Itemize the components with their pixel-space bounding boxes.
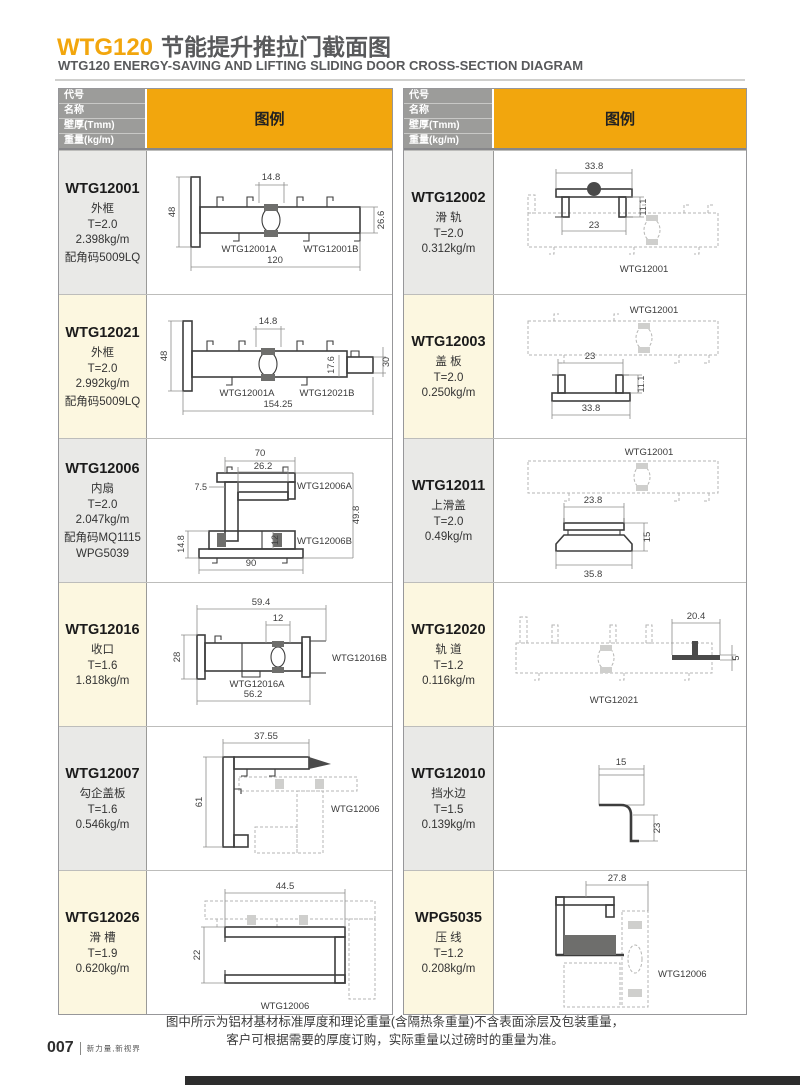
diagram-wtg12021: 14.8 48 17.6 30 154.25 WTG12001A WTG1202… — [147, 295, 391, 437]
profile-thickness: T=1.9 — [88, 948, 118, 960]
footer-divider — [80, 1042, 81, 1055]
ref-profile-label: WTG12001 — [630, 305, 679, 316]
profile-part-label: WTG12021B — [300, 388, 355, 399]
dashed-ref-profile — [528, 461, 718, 501]
header-label-code: 代号 — [404, 89, 492, 104]
profile-code: WTG12007 — [65, 766, 139, 782]
header-label-name: 名称 — [59, 104, 145, 119]
corner-code-note: WPG5039 — [76, 548, 129, 560]
profile-outline — [556, 518, 632, 551]
profile-code: WTG12011 — [412, 478, 485, 494]
dim-label: 44.5 — [276, 881, 295, 892]
profile-diagram: 20.4 5 WTG12021 — [494, 583, 746, 726]
profile-info: WTG12021 外框 T=2.0 2.992kg/m 配角码5009LQ — [59, 295, 147, 438]
profile-code: WTG12001 — [65, 181, 139, 197]
dim-label: 11.1 — [636, 376, 646, 393]
thermal-break-ref — [600, 645, 612, 651]
dim-label: 15 — [616, 757, 627, 768]
diagram-wtg12016: 59.4 12 28 56.2 WTG12016A WTG12016B — [147, 583, 391, 725]
thermal-break-ref — [638, 347, 650, 353]
header-label-name: 名称 — [404, 104, 492, 119]
thermal-break-ref — [315, 779, 324, 789]
dim-label: 20.4 — [687, 611, 706, 622]
corner-code-note: 配角码5009LQ — [65, 393, 140, 409]
profile-code: WTG12020 — [411, 622, 485, 638]
thermal-break-ref — [275, 779, 284, 789]
profile-diagram: 70 26.2 7.5 14.8 12 49.8 90 WTG12006A WT… — [147, 439, 392, 582]
header-label-weight: 重量(kg/m) — [404, 134, 492, 148]
thermal-break-ref — [646, 239, 658, 245]
ref-profile-label: WTG12006 — [331, 804, 380, 815]
header-label-weight: 重量(kg/m) — [59, 134, 145, 148]
thermal-break-ref — [299, 915, 308, 925]
dim-label: 33.8 — [585, 161, 604, 172]
profile-thickness: T=1.6 — [88, 660, 118, 672]
diagram-wtg12001: 14.8 48 26.6 120 WTG12001A WTG12001B — [147, 151, 391, 293]
profile-diagram: 37.55 61 WTG12006 — [147, 727, 392, 870]
dim-label: 61 — [194, 797, 205, 808]
dim-label: 35.8 — [584, 569, 603, 580]
dim-label: 154.25 — [263, 399, 292, 410]
profile-thickness: T=2.0 — [88, 363, 118, 375]
profile-diagram: 23 11.1 33.8 WTG12001 — [494, 295, 746, 438]
diagram-wtg12010: 15 23 — [494, 727, 745, 869]
profile-name: 外框 — [91, 344, 114, 360]
profile-name: 盖 板 — [435, 353, 461, 369]
profile-weight: 2.047kg/m — [76, 514, 130, 526]
ref-profile-label: WTG12001 — [625, 447, 674, 458]
thermal-break — [261, 348, 275, 355]
dimension-lines — [556, 503, 648, 569]
dim-label: 37.55 — [254, 731, 278, 742]
profile-name: 收口 — [91, 641, 114, 657]
profile-part-label: WTG12016B — [332, 653, 387, 664]
corner-code-note: 配角码MQ1115 — [64, 529, 141, 545]
profile-name: 压 线 — [435, 929, 461, 945]
dim-label: 14.8 — [176, 535, 186, 553]
thermal-break-ref — [628, 989, 642, 997]
profile-name: 滑 槽 — [89, 929, 115, 945]
profile-code: WPG5035 — [415, 910, 482, 926]
profile-part-label: WTG12001A — [220, 388, 276, 399]
profile-diagram: 59.4 12 28 56.2 WTG12016A WTG12016B — [147, 583, 392, 726]
profile-part-label: WTG12006A — [297, 481, 353, 492]
dashed-ref-profile — [205, 901, 375, 999]
profile-nose — [309, 757, 331, 769]
dim-label: 23 — [589, 220, 600, 231]
profile-code: WTG12016 — [65, 622, 139, 638]
thermal-break-ref — [638, 323, 650, 329]
page-footer: 007 新力量,新视界 — [47, 1039, 141, 1057]
bottom-edge-bar — [185, 1076, 800, 1085]
page-title-zh: 节能提升推拉门截面图 — [161, 34, 391, 60]
profile-info: WTG12026 滑 槽 T=1.9 0.620kg/m — [59, 871, 147, 1014]
thermal-break-ref — [247, 915, 256, 925]
thermal-break — [272, 667, 284, 673]
table-row: WTG12002 滑 轨 T=2.0 0.312kg/m — [404, 150, 746, 294]
profile-weight: 1.818kg/m — [76, 675, 130, 687]
diagram-wtg12006: 70 26.2 7.5 14.8 12 49.8 90 WTG12006A WT… — [147, 439, 391, 581]
profile-thickness: T=1.2 — [434, 948, 464, 960]
legend-header: 图例 — [147, 89, 392, 148]
dim-label: 14.8 — [259, 316, 278, 327]
profile-weight: 0.116kg/m — [422, 675, 475, 687]
profile-weight: 2.992kg/m — [76, 378, 130, 390]
table-header: 代号 名称 壁厚(Tmm) 重量(kg/m) 图例 — [59, 89, 392, 150]
page-number: 007 — [47, 1039, 74, 1057]
table-row: WTG12011 上滑盖 T=2.0 0.49kg/m — [404, 438, 746, 582]
header-label-thickness: 壁厚(Tmm) — [404, 119, 492, 134]
catalog-page: { "page": { "title_code": "WTG120", "tit… — [0, 0, 800, 1085]
profile-info: WTG12003 盖 板 T=2.0 0.250kg/m — [404, 295, 494, 438]
profile-thickness: T=1.5 — [434, 804, 464, 816]
profile-outline — [672, 655, 720, 660]
thermal-break-ref — [628, 921, 642, 929]
profile-diagram: 15 23 — [494, 727, 746, 870]
dim-label: 27.8 — [608, 873, 627, 884]
diagram-wtg12007: 37.55 61 WTG12006 — [147, 727, 391, 869]
dimension-lines — [185, 457, 353, 574]
legend-header: 图例 — [494, 89, 746, 148]
dim-label: 48 — [159, 351, 170, 362]
profile-info: WTG12010 挡水边 T=1.5 0.139kg/m — [404, 727, 494, 870]
profile-diagram: 33.8 11.1 23 WTG12001 — [494, 151, 746, 294]
profile-outline — [225, 927, 345, 983]
profile-name: 内扇 — [91, 480, 114, 496]
dim-label: 90 — [246, 558, 257, 569]
profile-part-label: WTG12016A — [230, 679, 286, 690]
profile-diagram: 44.5 22 WTG12006 — [147, 871, 392, 1014]
dimension-lines — [203, 739, 309, 847]
dim-label: 120 — [267, 255, 283, 266]
profile-name: 滑 轨 — [435, 209, 461, 225]
profile-thin-wall — [599, 775, 644, 805]
profile-info: WTG12016 收口 T=1.6 1.818kg/m — [59, 583, 147, 726]
dim-label: 23 — [652, 823, 663, 834]
profile-weight: 0.250kg/m — [422, 387, 476, 399]
dashed-ref-profile — [239, 777, 357, 853]
profile-part-label: WTG12001B — [304, 244, 359, 255]
dashed-ref-profile — [528, 195, 718, 254]
page-subtitle: WTG120 ENERGY-SAVING AND LIFTING SLIDING… — [58, 58, 583, 73]
profile-outline — [223, 757, 309, 847]
ref-profile-label: WTG12006 — [658, 969, 707, 980]
profile-outline — [183, 321, 373, 391]
profile-name: 轨 道 — [435, 641, 461, 657]
profile-outline — [197, 635, 326, 679]
thermal-break-ref — [636, 463, 648, 469]
dim-label: 30 — [381, 357, 391, 367]
corner-code-note: 配角码5009LQ — [65, 249, 140, 265]
profile-info: WTG12002 滑 轨 T=2.0 0.312kg/m — [404, 151, 494, 294]
profile-outline — [199, 467, 303, 563]
dim-label: 7.5 — [194, 482, 207, 492]
diagram-wtg12011: 23.8 15 35.8 WTG12001 — [494, 439, 745, 581]
dim-label: 22 — [192, 950, 203, 961]
dim-label: 12 — [273, 613, 284, 624]
profile-info: WTG12007 勾企盖板 T=1.6 0.546kg/m — [59, 727, 147, 870]
profile-table-right: 代号 名称 壁厚(Tmm) 重量(kg/m) 图例 WTG12002 滑 轨 T… — [403, 88, 747, 1015]
header-label-thickness: 壁厚(Tmm) — [59, 119, 145, 134]
table-header-labels: 代号 名称 壁厚(Tmm) 重量(kg/m) — [404, 89, 494, 148]
ref-profile-label: WTG12001 — [620, 264, 669, 275]
profile-diagram: 27.8 WTG12006 — [494, 871, 746, 1014]
dimension-lines — [586, 881, 648, 911]
profile-weight: 0.208kg/m — [422, 963, 476, 975]
dim-label: 56.2 — [244, 689, 263, 700]
profile-info: WTG12006 内扇 T=2.0 2.047kg/m 配角码MQ1115 WP… — [59, 439, 147, 582]
profile-code: WTG12002 — [411, 190, 485, 206]
gasket — [564, 935, 616, 955]
profile-thickness: T=1.2 — [434, 660, 464, 672]
dimension-lines — [201, 889, 345, 983]
profile-weight: 0.139kg/m — [422, 819, 476, 831]
profile-code: WTG12003 — [411, 334, 485, 350]
header-label-code: 代号 — [59, 89, 145, 104]
profile-code: WTG12006 — [65, 461, 139, 477]
profile-thickness: T=2.0 — [434, 372, 464, 384]
profile-thickness: T=1.6 — [88, 804, 118, 816]
dim-label: 70 — [255, 448, 266, 459]
profile-info: WTG12011 上滑盖 T=2.0 0.49kg/m — [404, 439, 494, 582]
dashed-ref-profile — [516, 617, 712, 680]
dim-label: 59.4 — [252, 597, 271, 608]
diagram-wtg12003: 23 11.1 33.8 WTG12001 — [494, 295, 745, 437]
profile-info: WPG5035 压 线 T=1.2 0.208kg/m — [404, 871, 494, 1014]
table-row: WTG12010 挡水边 T=1.5 0.139kg/m 15 23 — [404, 726, 746, 870]
thermal-break — [217, 533, 226, 547]
ref-profile-label: WTG12021 — [590, 695, 639, 706]
profile-outline — [599, 805, 639, 841]
thermal-break — [261, 374, 275, 381]
table-row: WTG12020 轨 道 T=1.2 0.116kg/m — [404, 582, 746, 726]
profile-tab — [692, 641, 698, 655]
dimension-lines — [672, 619, 736, 671]
dim-label: 49.8 — [351, 506, 362, 525]
page-title-code: WTG120 — [57, 34, 153, 61]
dim-label: 11.1 — [638, 199, 648, 216]
dim-label: 14.8 — [262, 172, 281, 183]
profile-table-left: 代号 名称 壁厚(Tmm) 重量(kg/m) 图例 WTG12001 外框 T=… — [58, 88, 393, 1015]
thermal-break — [272, 641, 284, 647]
diagram-wtg12020: 20.4 5 WTG12021 — [494, 583, 745, 725]
profile-diagram: 14.8 48 17.6 30 154.25 WTG12001A WTG1202… — [147, 295, 392, 438]
profile-weight: 0.312kg/m — [422, 243, 476, 255]
table-row: WTG12007 勾企盖板 T=1.6 0.546kg/m — [59, 726, 392, 870]
dim-label: 48 — [167, 207, 178, 218]
profile-name: 上滑盖 — [431, 497, 466, 513]
table-row: WTG12003 盖 板 T=2.0 0.250kg/m — [404, 294, 746, 438]
dim-label: 23.8 — [584, 495, 603, 506]
thermal-break-ref — [636, 485, 648, 491]
table-row: WTG12001 外框 T=2.0 2.398kg/m 配角码5009LQ — [59, 150, 392, 294]
dim-label: 12 — [270, 535, 280, 545]
profile-weight: 0.546kg/m — [76, 819, 130, 831]
profile-diagram: 14.8 48 26.6 120 WTG12001A WTG12001B — [147, 151, 392, 294]
dim-label: 17.6 — [326, 356, 336, 374]
thermal-break-ref — [600, 667, 612, 673]
dim-label: 28 — [172, 652, 183, 663]
header-rule — [55, 79, 745, 81]
profile-thickness: T=2.0 — [88, 499, 118, 511]
dim-label: 5 — [731, 655, 741, 660]
diagram-wpg5035: 27.8 WTG12006 — [494, 871, 745, 1013]
table-header-labels: 代号 名称 壁厚(Tmm) 重量(kg/m) — [59, 89, 147, 148]
table-header: 代号 名称 壁厚(Tmm) 重量(kg/m) 图例 — [404, 89, 746, 150]
footer-note-line1: 图中所示为铝材基材标准厚度和理论重量(含隔热条重量)不含表面涂层及包装重量， — [0, 1011, 790, 1030]
thermal-break — [264, 230, 278, 237]
diagram-wtg12002: 33.8 11.1 23 WTG12001 — [494, 151, 745, 293]
table-row: WTG12026 滑 槽 T=1.9 0.620kg/m — [59, 870, 392, 1014]
dashed-ref-profile — [528, 314, 718, 363]
profile-diagram: 23.8 15 35.8 WTG12001 — [494, 439, 746, 582]
table-row: WTG12006 内扇 T=2.0 2.047kg/m 配角码MQ1115 WP… — [59, 438, 392, 582]
thermal-break — [264, 204, 278, 211]
profile-name: 挡水边 — [431, 785, 466, 801]
profile-outline — [552, 375, 630, 401]
brand-slogan: 新力量,新视界 — [87, 1043, 141, 1054]
profile-weight: 0.620kg/m — [76, 963, 130, 975]
profile-thickness: T=2.0 — [88, 219, 118, 231]
profile-info: WTG12001 外框 T=2.0 2.398kg/m 配角码5009LQ — [59, 151, 147, 294]
profile-rail-bead — [587, 182, 601, 196]
profile-part-label: WTG12001A — [222, 244, 278, 255]
profile-code: WTG12010 — [411, 766, 485, 782]
dim-label: 26.2 — [254, 461, 273, 472]
profile-weight: 2.398kg/m — [76, 234, 130, 246]
dim-label: 15 — [642, 532, 653, 543]
table-row: WTG12016 收口 T=1.6 1.818kg/m — [59, 582, 392, 726]
diagram-wtg12026: 44.5 22 WTG12006 — [147, 871, 391, 1013]
profile-code: WTG12026 — [65, 910, 139, 926]
page-title: WTG120节能提升推拉门截面图 — [57, 28, 391, 62]
table-row: WPG5035 压 线 T=1.2 0.208kg/m — [404, 870, 746, 1014]
profile-thickness: T=2.0 — [434, 516, 464, 528]
dimension-lines — [599, 765, 658, 841]
table-row: WTG12021 外框 T=2.0 2.992kg/m 配角码5009LQ — [59, 294, 392, 438]
profile-part-label: WTG12006B — [297, 536, 352, 547]
dim-label: 26.6 — [376, 211, 387, 230]
profile-code: WTG12021 — [65, 325, 139, 341]
profile-name: 勾企盖板 — [80, 785, 126, 801]
profile-info: WTG12020 轨 道 T=1.2 0.116kg/m — [404, 583, 494, 726]
profile-thickness: T=2.0 — [434, 228, 464, 240]
profile-weight: 0.49kg/m — [425, 531, 472, 543]
profile-name: 外框 — [91, 200, 114, 216]
dim-label: 23 — [585, 351, 596, 362]
dim-label: 33.8 — [582, 403, 601, 414]
